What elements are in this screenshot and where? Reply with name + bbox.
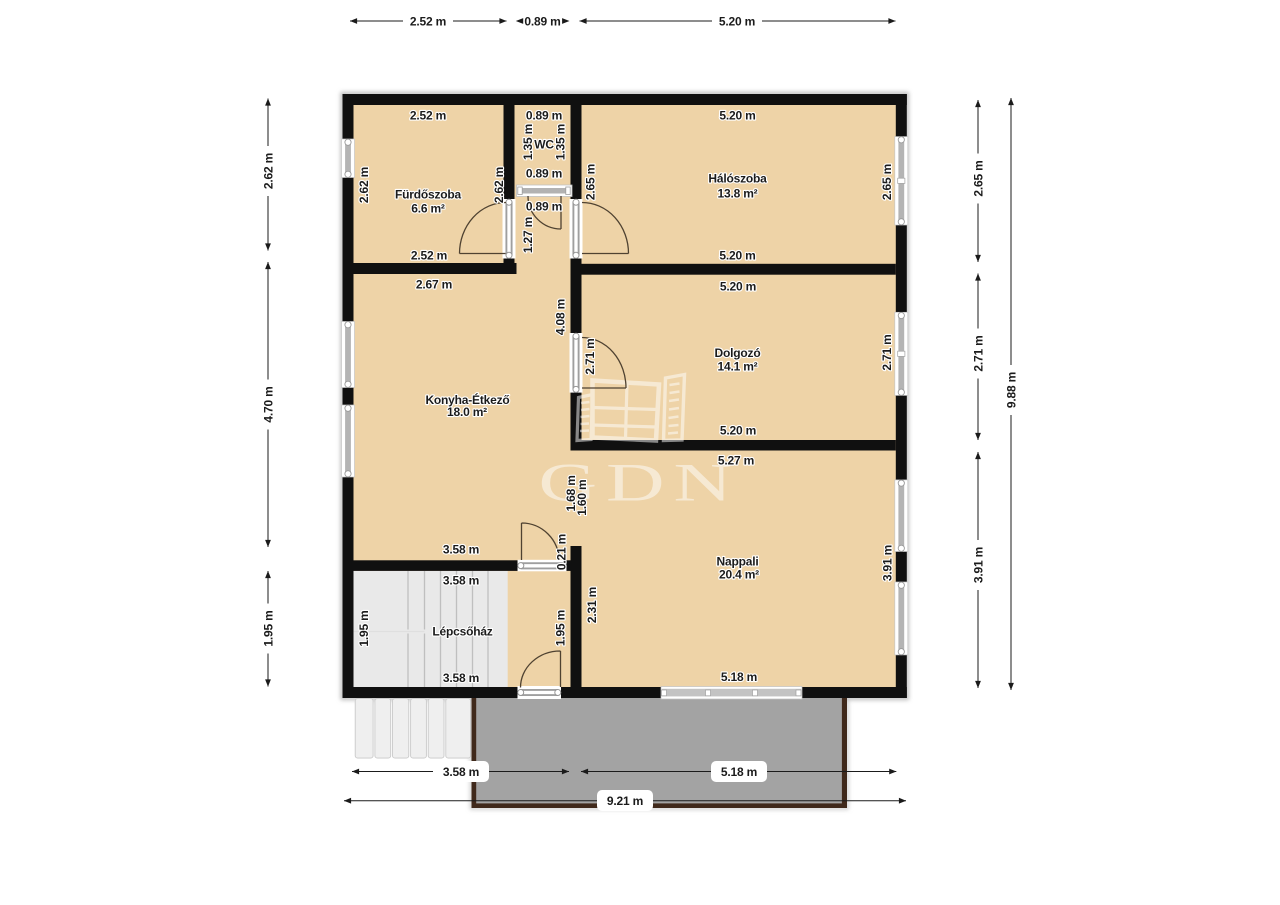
svg-text:4.08 m: 4.08 m [554, 299, 568, 335]
svg-text:1.35 m: 1.35 m [521, 124, 535, 160]
svg-text:5.20 m: 5.20 m [719, 109, 755, 123]
svg-text:2.52 m: 2.52 m [410, 109, 446, 123]
svg-text:1.60 m: 1.60 m [575, 480, 589, 516]
svg-text:3.91 m: 3.91 m [972, 547, 986, 583]
svg-text:Dolgozó: Dolgozó [715, 346, 761, 360]
svg-text:Nappali: Nappali [717, 555, 759, 569]
svg-text:2.62 m: 2.62 m [357, 167, 371, 203]
svg-text:13.8 m²: 13.8 m² [718, 187, 758, 201]
svg-text:5.18 m: 5.18 m [721, 765, 757, 779]
svg-text:0.89 m: 0.89 m [526, 109, 562, 123]
svg-text:14.1 m²: 14.1 m² [718, 360, 758, 374]
svg-text:1.27 m: 1.27 m [521, 217, 535, 253]
svg-text:20.4 m²: 20.4 m² [719, 568, 759, 582]
svg-text:0.89 m: 0.89 m [526, 200, 562, 214]
svg-text:1.35 m: 1.35 m [554, 124, 568, 160]
svg-text:3.58 m: 3.58 m [443, 574, 479, 588]
svg-text:3.91 m: 3.91 m [881, 545, 895, 581]
svg-text:6.6 m²: 6.6 m² [411, 202, 445, 216]
svg-text:Lépcsőház: Lépcsőház [432, 625, 492, 639]
svg-text:1.95 m: 1.95 m [357, 610, 371, 646]
svg-text:18.0 m²: 18.0 m² [447, 405, 487, 419]
svg-text:3.58 m: 3.58 m [443, 671, 479, 685]
svg-text:2.31 m: 2.31 m [585, 587, 599, 623]
svg-text:0.21 m: 0.21 m [555, 534, 569, 570]
svg-text:Hálószoba: Hálószoba [708, 172, 767, 186]
svg-text:2.71 m: 2.71 m [880, 334, 894, 370]
svg-text:Fürdőszoba: Fürdőszoba [395, 188, 462, 202]
svg-text:2.65 m: 2.65 m [880, 164, 894, 200]
svg-text:2.62 m: 2.62 m [262, 153, 276, 189]
svg-text:2.52 m: 2.52 m [411, 249, 447, 263]
svg-text:9.21 m: 9.21 m [607, 794, 643, 808]
svg-text:2.65 m: 2.65 m [972, 160, 986, 196]
svg-text:1.95 m: 1.95 m [262, 610, 276, 646]
svg-text:2.71 m: 2.71 m [583, 338, 597, 374]
svg-text:2.62 m: 2.62 m [492, 167, 506, 203]
svg-text:0.89 m: 0.89 m [524, 15, 560, 29]
svg-text:2.65 m: 2.65 m [584, 164, 598, 200]
svg-text:3.58 m: 3.58 m [443, 543, 479, 557]
svg-text:2.52 m: 2.52 m [410, 15, 446, 29]
svg-text:4.70 m: 4.70 m [262, 386, 276, 422]
svg-text:WC: WC [534, 138, 554, 152]
svg-text:5.20 m: 5.20 m [719, 249, 755, 263]
svg-text:5.20 m: 5.20 m [720, 280, 756, 294]
svg-text:0.89 m: 0.89 m [526, 167, 562, 181]
svg-text:5.18 m: 5.18 m [721, 670, 757, 684]
svg-text:5.27 m: 5.27 m [718, 454, 754, 468]
svg-text:1.95 m: 1.95 m [554, 610, 568, 646]
svg-text:2.67 m: 2.67 m [416, 278, 452, 292]
svg-text:3.58 m: 3.58 m [443, 765, 479, 779]
svg-text:9.88 m: 9.88 m [1005, 372, 1019, 408]
svg-text:2.71 m: 2.71 m [972, 335, 986, 371]
svg-text:5.20 m: 5.20 m [720, 424, 756, 438]
svg-text:5.20 m: 5.20 m [719, 15, 755, 29]
